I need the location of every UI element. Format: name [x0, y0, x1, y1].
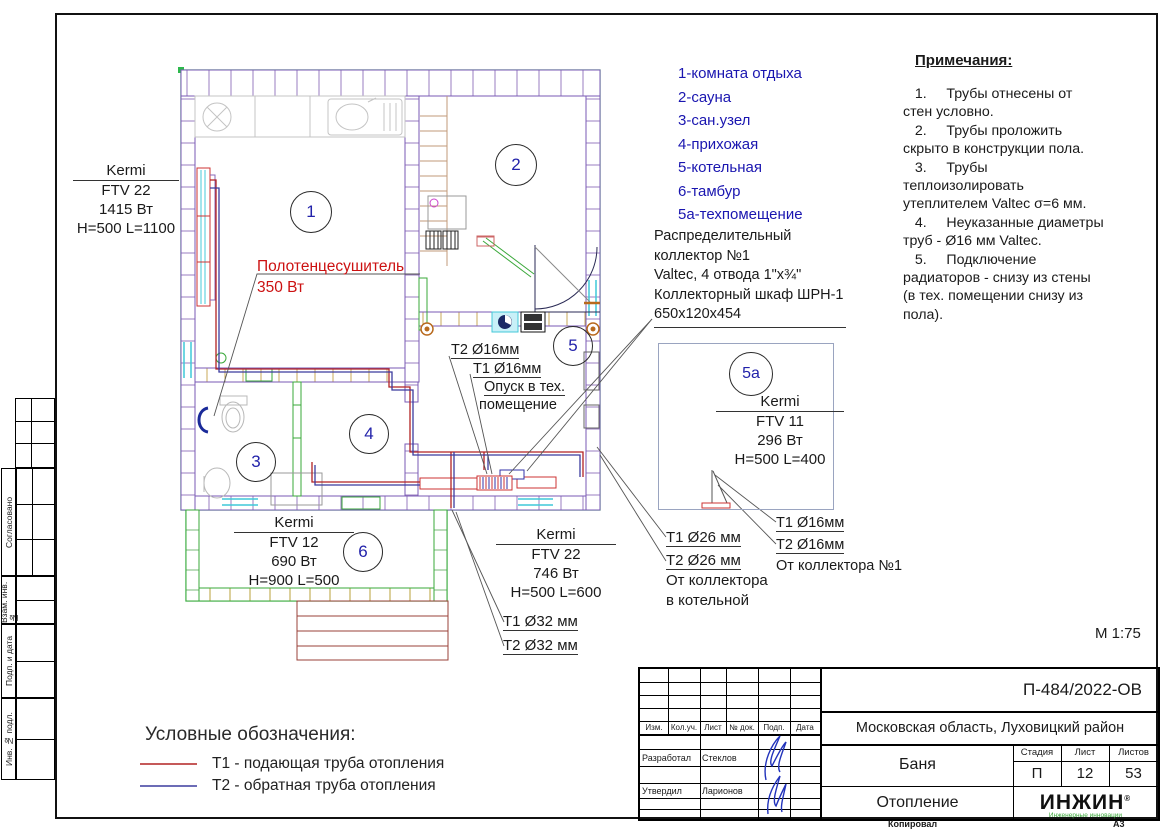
collector-note-line: 650х120х454	[654, 305, 846, 325]
room-legend-item: 2-сауна	[678, 86, 803, 110]
radiator-label-room6: Kermi FTV 12 690 Вт H=900 L=500	[234, 513, 354, 590]
pipe-label-d26-from2: в котельной	[666, 592, 749, 609]
signature-scribble	[758, 732, 790, 817]
towel-rail-label: Полотенцесушитель 350 Вт	[257, 256, 404, 298]
note-item: 1. Трубы отнесены от стен условно.	[903, 85, 1161, 122]
pipe-label-d16-t2: Т2 Ø16мм	[776, 537, 844, 554]
collector-note-line: коллектор №1	[654, 247, 846, 267]
room-circle-2: 2	[495, 144, 537, 186]
col-list: Лист	[700, 721, 726, 734]
radiator-model: FTV 12	[269, 534, 318, 551]
radiator-room1	[197, 168, 215, 306]
col-izm: Изм.	[640, 721, 668, 734]
door-marks	[246, 278, 427, 509]
room-legend-item: 1-комната отдыха	[678, 62, 803, 86]
radiator-power: 690 Вт	[271, 553, 317, 570]
col-koluch: Кол.уч.	[668, 721, 700, 734]
radiator-brand: Kermi	[496, 525, 616, 545]
title-block: Изм. Кол.уч. Лист № док. Подп. Дата Разр…	[638, 667, 1160, 821]
sauna-door-icon	[477, 237, 534, 277]
approved-label: Утвердил	[642, 783, 699, 798]
room-number: 1	[306, 202, 315, 222]
legend-item-t2: Т2 - обратная труба отопления	[212, 777, 436, 795]
pipe-label-d26-t1: Т1 Ø26 мм	[666, 529, 741, 547]
radiator-brand: Kermi	[73, 161, 179, 181]
notes-block: Примечания: 1. Трубы отнесены от стен ус…	[903, 52, 1161, 324]
pipe-label-d32-t2: Т2 Ø32 мм	[503, 637, 578, 655]
developed-label: Разработал	[642, 749, 699, 766]
margin-grid	[15, 468, 55, 576]
kitchen-counter	[195, 96, 405, 137]
room-circle-5a: 5а	[729, 352, 773, 396]
room-number: 5	[568, 336, 577, 356]
burner-icon	[203, 103, 231, 131]
radiator-power: 296 Вт	[757, 432, 803, 449]
room-legend-item: 5-котельная	[678, 156, 803, 180]
margin-grid	[15, 398, 55, 468]
room-circle-5: 5	[553, 326, 593, 366]
room-number: 2	[511, 155, 520, 175]
stage-value: П	[1013, 761, 1061, 786]
floor-drain-icon	[492, 312, 518, 332]
radiator-size: H=500 L=600	[511, 584, 602, 601]
vent-mark	[216, 353, 226, 363]
room-circle-4: 4	[349, 414, 389, 454]
room-circle-1: 1	[290, 191, 332, 233]
pipe-label-drop-text1: Опуск в тех.	[484, 379, 565, 396]
sheets-total: 53	[1109, 761, 1158, 786]
room-legend-item: 6-тамбур	[678, 180, 803, 204]
radiator-brand: Kermi	[234, 513, 354, 533]
note-item: 5. Подключение радиаторов - снизу из сте…	[903, 251, 1161, 325]
pipe-label-d16-t1: Т1 Ø16мм	[776, 515, 844, 532]
format-label: А3	[1113, 819, 1125, 829]
drawing-name: Отопление	[822, 786, 1013, 819]
room-number: 5а	[742, 365, 760, 383]
note-item: 3. Трубы теплоизолировать утеплителем Va…	[903, 159, 1161, 214]
room-legend-item: 3-сан.узел	[678, 109, 803, 133]
stage-label: Стадия	[1013, 744, 1061, 761]
doc-number: П-484/2022-ОВ	[822, 669, 1142, 711]
radiator-power: 746 Вт	[533, 565, 579, 582]
pipe-label-d32-t1: Т1 Ø32 мм	[503, 613, 578, 631]
sheet-number: 12	[1061, 761, 1109, 786]
room-legend-item: 4-прихожая	[678, 133, 803, 157]
pipe-label-drop-text2: помещение	[479, 397, 557, 413]
radiator-model: FTV 22	[531, 546, 580, 563]
collector-note-line: Распределительный	[654, 227, 846, 247]
sauna-heater-icon	[426, 231, 458, 249]
towel-rail-power: 350 Вт	[257, 279, 304, 296]
kitchen-sink-icon	[328, 98, 402, 135]
collector-note-line: Valtec, 4 отвода 1"х¾"	[654, 266, 846, 286]
legend-title: Условные обозначения:	[145, 724, 356, 746]
radiator-size: H=500 L=400	[735, 451, 826, 468]
legend-item-t1: Т1 - подающая труба отопления	[212, 755, 444, 773]
radiator-power: 1415 Вт	[99, 201, 153, 218]
sheets-label: Листов	[1109, 744, 1158, 761]
room-circle-3: 3	[236, 442, 276, 482]
object-name: Баня	[822, 744, 1013, 786]
wall-cabinet-icon	[521, 312, 545, 332]
room-legend-item: 5а-техпомещение	[678, 203, 803, 227]
logo-subtitle: Инженерные инновации	[1013, 812, 1158, 819]
radiator-label-hall: Kermi FTV 22 746 Вт H=500 L=600	[496, 525, 616, 602]
collector-note: Распределительный коллектор №1 Valtec, 4…	[654, 227, 846, 328]
col-ndok: № док.	[726, 721, 758, 734]
company-logo: ИНЖИН® Инженерные инновации	[1013, 786, 1158, 819]
room-number: 3	[251, 452, 260, 472]
pipe-label-drop-t2: Т2 Ø16мм	[451, 342, 519, 359]
washbasin-icon	[204, 468, 230, 498]
pipe-label-d26-t2: Т2 Ø26 мм	[666, 552, 741, 570]
project-location: Московская область, Луховицкий район	[822, 711, 1158, 744]
copied-label: Копировал	[888, 819, 937, 829]
radiator-brand: Kermi	[716, 392, 844, 412]
margin-grid	[15, 624, 55, 698]
notes-title: Примечания:	[915, 52, 1161, 69]
scale-label: М 1:75	[1095, 625, 1141, 642]
radiator-model: FTV 22	[101, 182, 150, 199]
porch-steps	[297, 601, 448, 660]
toilet-icon	[220, 396, 247, 432]
developed-name: Стеклов	[702, 749, 757, 766]
towel-rail-name: Полотенцесушитель	[257, 258, 404, 275]
pipe-label-d16-from: От коллектора №1	[776, 558, 902, 574]
approved-name: Ларионов	[702, 783, 757, 798]
drawing-sheet: 1 2 3 4 5 6 5а Kermi FTV 11 296 Вт H=500…	[0, 0, 1166, 833]
room-number: 6	[358, 542, 367, 562]
radiator-size: H=500 L=1100	[77, 220, 175, 237]
room-number: 4	[364, 424, 373, 444]
collector-note-line: Коллекторный шкаф ШРН-1	[654, 286, 846, 306]
col-data: Дата	[790, 721, 820, 734]
note-item: 2. Трубы проложить скрыто в конструкции …	[903, 122, 1161, 159]
pipe-label-d26-from1: От коллектора	[666, 572, 768, 589]
radiator-label-tech: Kermi FTV 11 296 Вт H=500 L=400	[716, 392, 844, 469]
radiator-size: H=900 L=500	[249, 572, 340, 589]
logo-text: ИНЖИН	[1040, 791, 1125, 814]
radiator-model: FTV 11	[756, 413, 804, 430]
note-item: 4. Неуказанные диаметры труб - Ø16 мм Va…	[903, 214, 1161, 251]
margin-grid	[15, 698, 55, 780]
margin-grid	[15, 576, 55, 624]
room-legend: 1-комната отдыха 2-сауна 3-сан.узел 4-пр…	[678, 62, 803, 227]
sheet-label: Лист	[1061, 744, 1109, 761]
radiator-label-room1: Kermi FTV 22 1415 Вт H=500 L=1100	[73, 161, 179, 238]
pipe-label-drop-t1: Т1 Ø16мм	[473, 361, 541, 378]
towel-rail-icon	[199, 408, 208, 432]
